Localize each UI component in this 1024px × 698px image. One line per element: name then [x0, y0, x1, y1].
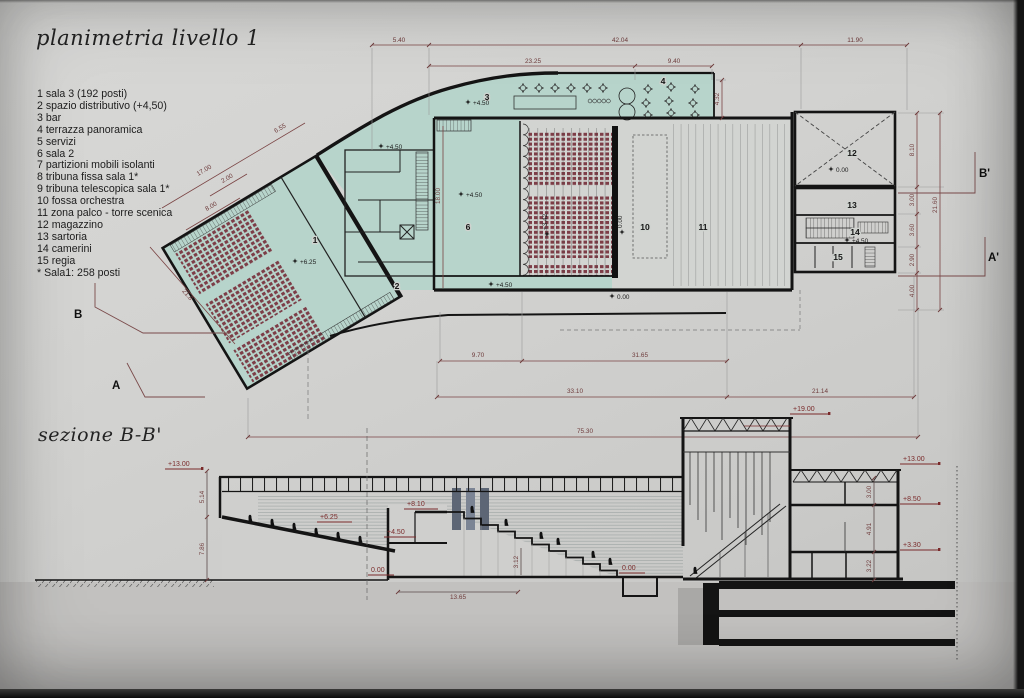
- room-label: 12: [847, 148, 857, 158]
- dim-label: 31.65: [632, 352, 648, 359]
- level-label: +3.42: [542, 213, 549, 230]
- seat-row-lines: [526, 128, 614, 276]
- photo-edge-top: [0, 0, 1024, 3]
- room-label: 11: [698, 222, 707, 232]
- ground-hatch: [36, 580, 214, 587]
- services-stair: [416, 152, 428, 230]
- ground-mass: [0, 582, 1024, 690]
- sala2-zone: [434, 118, 520, 290]
- dim-label: 4.91: [866, 522, 873, 535]
- section-drawing: +13.00 +6.25 +8.10 +4.50 0.00 0.00 +19.0…: [0, 406, 1024, 690]
- drawing-canvas: 5.40 42.04 11.90 23.25 9.40 4.32 17.00 6…: [0, 0, 1024, 698]
- tribuna-wall: [612, 126, 618, 278]
- level-label: +6.25: [300, 259, 317, 266]
- dim-label: 23.25: [525, 58, 541, 65]
- stage-tower-hatch: [668, 124, 788, 286]
- dim-label: 33.10: [567, 388, 583, 395]
- dim-label: 5.40: [393, 37, 406, 44]
- level-label: +6.25: [320, 514, 338, 521]
- dim-label: 2.90: [909, 253, 916, 266]
- level-label: +3.30: [903, 542, 921, 549]
- magazzino-cross: [795, 112, 895, 186]
- room-label: 1: [313, 235, 318, 245]
- right-wing: [790, 470, 901, 580]
- level-label: 0.00: [617, 294, 630, 301]
- dim-label: 18.00: [435, 188, 442, 204]
- dim-label: 3.60: [909, 223, 916, 236]
- dim-label: 8.00: [204, 200, 219, 213]
- level-label: +13.00: [903, 456, 925, 463]
- dim-label: 21.60: [932, 197, 939, 213]
- stage-tower: [680, 418, 793, 579]
- fly-lines: [690, 452, 770, 545]
- dim-label: 3.00: [909, 193, 916, 206]
- room-label: 13: [847, 200, 857, 210]
- roof-mullions: [222, 477, 683, 491]
- level-label: 0.00: [622, 565, 636, 572]
- level-label: +19.00: [793, 406, 815, 413]
- dim-label: 3.12: [513, 555, 520, 568]
- room-label: 6: [466, 222, 471, 232]
- dim-label: 7.86: [199, 542, 206, 555]
- level-label: +4.50: [466, 192, 483, 199]
- dim-label: 11.90: [847, 37, 863, 44]
- photo-edge-bottom: [0, 689, 1024, 698]
- dim-label: 4.00: [909, 284, 916, 297]
- sala2-stair-comb: [437, 120, 471, 131]
- section-marker-B1: B': [979, 168, 990, 180]
- level-label: +4.50: [852, 238, 869, 245]
- floor-plan-drawing: 5.40 42.04 11.90 23.25 9.40 4.32 17.00 6…: [74, 37, 999, 439]
- level-label: 0.00: [371, 567, 385, 574]
- dim-label: 75.30: [577, 428, 593, 435]
- level-label: +8.50: [903, 496, 921, 503]
- section-marker-B: B: [74, 309, 82, 321]
- column: [452, 488, 461, 530]
- dim-label: 8.10: [909, 143, 916, 156]
- level-label: +8.10: [407, 501, 425, 508]
- dim-label: 3.22: [866, 559, 873, 572]
- dim-label: 17.00: [196, 163, 214, 177]
- level-label: +13.00: [168, 461, 190, 468]
- level-label: +4.50: [386, 144, 403, 151]
- room-label: 15: [833, 252, 843, 262]
- level-label: +4.50: [387, 529, 405, 536]
- corridor-stair: [806, 228, 854, 238]
- corridor-stair: [806, 218, 854, 228]
- level-label: 0.00: [617, 215, 624, 228]
- room-label: 2: [395, 281, 400, 291]
- dim-label: 3.00: [866, 485, 873, 498]
- dim-label: 9.70: [472, 352, 485, 359]
- level-label: 0.00: [836, 167, 849, 174]
- architectural-drawing-photo: planimetria livello 1 1 sala 3 (192 post…: [0, 0, 1024, 698]
- room-label: 14: [850, 227, 860, 237]
- section-marker-A: A: [112, 380, 120, 392]
- level-label: +4.50: [473, 100, 490, 107]
- room-label: 10: [640, 222, 650, 232]
- dim-label: 6.55: [273, 122, 288, 135]
- corridor-stair: [858, 222, 888, 233]
- dim-label: 13.65: [450, 594, 466, 601]
- dim-label: 21.14: [812, 388, 828, 395]
- photo-edge-right: [1013, 0, 1024, 698]
- dim-label: 42.04: [612, 37, 628, 44]
- room-label: 4: [661, 76, 666, 86]
- dim-label: 4.32: [714, 92, 721, 105]
- dim-label: 5.14: [199, 490, 206, 503]
- ladder: [865, 247, 875, 267]
- section-marker-A1: A': [988, 252, 999, 264]
- level-label: +4.50: [496, 282, 513, 289]
- dim-label: 9.40: [668, 58, 681, 65]
